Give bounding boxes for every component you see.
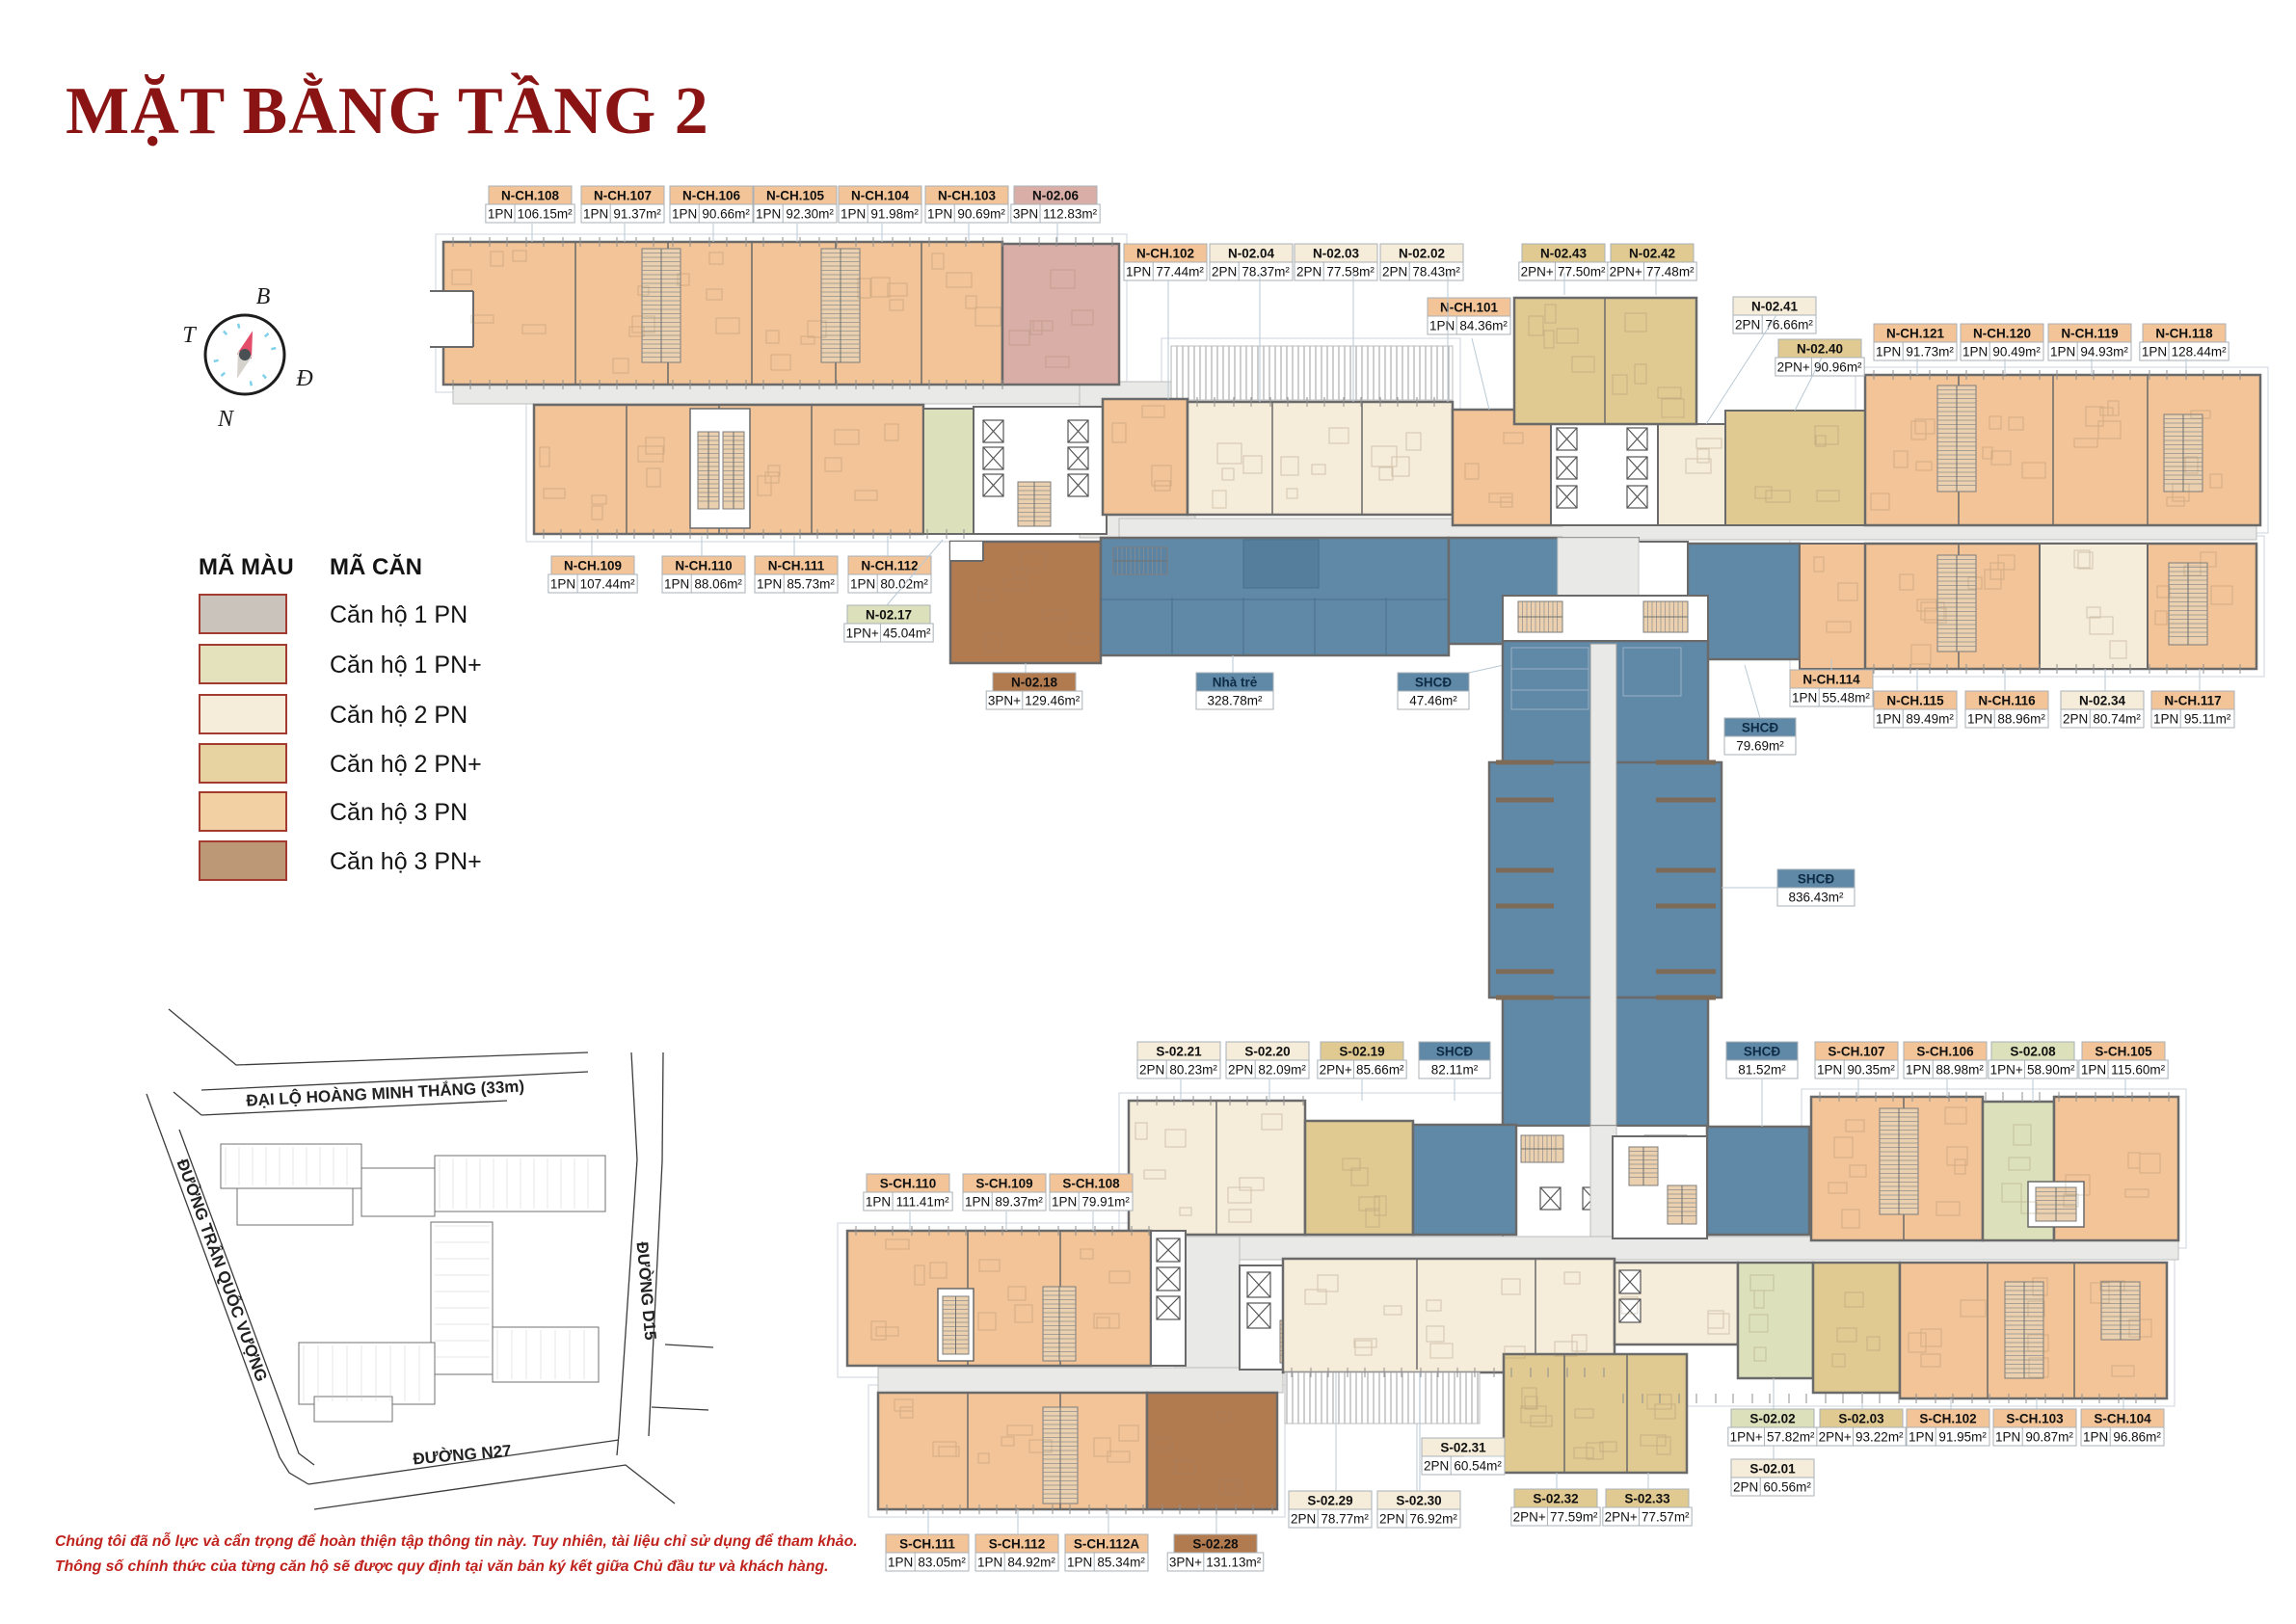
svg-text:1PN: 1PN — [2142, 345, 2167, 359]
svg-text:1PN: 1PN — [1429, 319, 1455, 333]
svg-text:2PN: 2PN — [1296, 265, 1322, 280]
svg-text:1PN: 1PN — [965, 1195, 990, 1210]
svg-text:1PN: 1PN — [1126, 265, 1151, 280]
svg-text:60.56m²: 60.56m² — [1763, 1480, 1811, 1495]
svg-text:85.73m²: 85.73m² — [787, 577, 835, 592]
svg-text:N-CH.106: N-CH.106 — [682, 189, 741, 203]
svg-text:89.49m²: 89.49m² — [1906, 712, 1954, 727]
svg-text:1PN: 1PN — [2083, 1430, 2108, 1445]
svg-text:78.43m²: 78.43m² — [1412, 265, 1460, 280]
svg-text:3PN+: 3PN+ — [1169, 1556, 1202, 1570]
svg-text:1PN: 1PN — [927, 207, 952, 222]
svg-text:S-CH.107: S-CH.107 — [1828, 1045, 1884, 1059]
svg-text:S-CH.112A: S-CH.112A — [1074, 1537, 1140, 1552]
svg-text:77.48m²: 77.48m² — [1646, 265, 1695, 280]
svg-text:1PN: 1PN — [866, 1195, 891, 1210]
svg-text:1PN: 1PN — [1909, 1430, 1934, 1445]
svg-text:77.59m²: 77.59m² — [1550, 1510, 1598, 1525]
svg-text:S-02.33: S-02.33 — [1624, 1492, 1670, 1506]
svg-text:1PN: 1PN — [1962, 345, 1988, 359]
svg-text:S-02.01: S-02.01 — [1749, 1462, 1796, 1477]
svg-text:1PN: 1PN — [1876, 712, 1901, 727]
svg-text:S-02.32: S-02.32 — [1533, 1492, 1578, 1506]
svg-text:85.34m²: 85.34m² — [1097, 1556, 1145, 1570]
svg-text:Chúng tôi đã nỗ lực và cẩn trọ: Chúng tôi đã nỗ lực và cẩn trọng để hoàn… — [55, 1531, 858, 1550]
svg-text:1PN: 1PN — [1792, 691, 1817, 706]
svg-text:129.46m²: 129.46m² — [1025, 694, 1081, 708]
svg-text:836.43m²: 836.43m² — [1788, 891, 1844, 905]
svg-text:78.77m²: 78.77m² — [1321, 1512, 1369, 1527]
svg-text:2PN: 2PN — [2063, 712, 2088, 727]
svg-text:2PN: 2PN — [1139, 1063, 1164, 1078]
svg-text:N-02.06: N-02.06 — [1032, 189, 1080, 203]
svg-text:79.91m²: 79.91m² — [1081, 1195, 1130, 1210]
svg-text:S-CH.104: S-CH.104 — [2094, 1412, 2151, 1426]
svg-text:Căn hộ 1 PN+: Căn hộ 1 PN+ — [330, 652, 482, 679]
svg-text:N-CH.117: N-CH.117 — [2164, 694, 2221, 708]
svg-text:1PN: 1PN — [583, 207, 608, 222]
svg-text:1PN: 1PN — [756, 207, 781, 222]
svg-text:93.22m²: 93.22m² — [1855, 1430, 1904, 1445]
svg-text:55.48m²: 55.48m² — [1822, 691, 1870, 706]
svg-text:MÃ CĂN: MÃ CĂN — [330, 553, 422, 580]
svg-text:N-CH.116: N-CH.116 — [1978, 694, 2036, 708]
svg-text:Căn hộ 3 PN: Căn hộ 3 PN — [330, 799, 467, 826]
svg-text:77.44m²: 77.44m² — [1156, 265, 1204, 280]
svg-text:60.54m²: 60.54m² — [1454, 1459, 1502, 1474]
svg-text:1PN: 1PN — [2050, 345, 2075, 359]
svg-text:79.69m²: 79.69m² — [1736, 739, 1784, 754]
svg-text:57.82m²: 57.82m² — [1767, 1430, 1815, 1445]
svg-text:1PN+: 1PN+ — [1730, 1430, 1763, 1445]
svg-text:1PN: 1PN — [1067, 1556, 1092, 1570]
svg-text:1PN: 1PN — [2081, 1063, 2106, 1078]
svg-text:1PN: 1PN — [1817, 1063, 1842, 1078]
svg-text:N-CH.112: N-CH.112 — [861, 559, 918, 573]
svg-text:2PN+: 2PN+ — [1819, 1430, 1852, 1445]
svg-text:78.37m²: 78.37m² — [1241, 265, 1290, 280]
svg-text:N-CH.115: N-CH.115 — [1886, 694, 1944, 708]
svg-text:2PN+: 2PN+ — [1610, 265, 1642, 280]
svg-text:S-02.28: S-02.28 — [1192, 1537, 1239, 1552]
svg-text:S-CH.110: S-CH.110 — [880, 1177, 937, 1191]
svg-text:N-CH.101: N-CH.101 — [1440, 301, 1499, 315]
svg-text:N-CH.120: N-CH.120 — [1973, 327, 2031, 341]
svg-text:S-CH.103: S-CH.103 — [2006, 1412, 2064, 1426]
svg-text:84.36m²: 84.36m² — [1459, 319, 1508, 333]
svg-text:N-CH.107: N-CH.107 — [594, 189, 652, 203]
svg-text:1PN: 1PN — [757, 577, 782, 592]
svg-text:S-CH.105: S-CH.105 — [2095, 1045, 2152, 1059]
svg-text:N-02.03: N-02.03 — [1313, 247, 1360, 261]
svg-text:92.30m²: 92.30m² — [786, 207, 834, 222]
svg-text:S-02.21: S-02.21 — [1156, 1045, 1202, 1059]
svg-text:1PN: 1PN — [977, 1556, 1002, 1570]
svg-text:131.13m²: 131.13m² — [1206, 1556, 1262, 1570]
svg-text:2PN: 2PN — [1291, 1512, 1316, 1527]
svg-text:Căn hộ 2 PN+: Căn hộ 2 PN+ — [330, 751, 482, 778]
svg-text:76.92m²: 76.92m² — [1409, 1512, 1457, 1527]
svg-text:N-02.42: N-02.42 — [1629, 247, 1675, 261]
svg-text:SHCĐ: SHCĐ — [1744, 1045, 1781, 1059]
svg-text:Căn hộ 3 PN+: Căn hộ 3 PN+ — [330, 848, 482, 875]
svg-text:MẶT BẰNG TẦNG 2: MẶT BẰNG TẦNG 2 — [66, 72, 709, 148]
svg-text:1PN: 1PN — [888, 1556, 913, 1570]
svg-text:Nhà trẻ: Nhà trẻ — [1213, 676, 1258, 690]
svg-text:2PN: 2PN — [1735, 318, 1760, 333]
svg-text:1PN: 1PN — [1052, 1195, 1077, 1210]
svg-text:94.93m²: 94.93m² — [2080, 345, 2128, 359]
svg-text:91.98m²: 91.98m² — [870, 207, 919, 222]
svg-text:81.52m²: 81.52m² — [1738, 1063, 1786, 1078]
svg-text:2PN: 2PN — [1212, 265, 1237, 280]
svg-text:N-CH.110: N-CH.110 — [675, 559, 732, 573]
svg-text:MÃ MÀU: MÃ MÀU — [199, 553, 294, 580]
svg-text:SHCĐ: SHCĐ — [1798, 872, 1835, 887]
svg-text:90.66m²: 90.66m² — [702, 207, 750, 222]
svg-text:Thông số chính thức của từng c: Thông số chính thức của từng căn hộ sẽ đ… — [55, 1558, 829, 1575]
svg-text:N-02.41: N-02.41 — [1751, 300, 1799, 314]
svg-text:N-CH.111: N-CH.111 — [768, 559, 825, 573]
svg-text:Căn hộ 2 PN: Căn hộ 2 PN — [330, 702, 467, 729]
svg-text:47.46m²: 47.46m² — [1409, 694, 1457, 708]
svg-text:95.11m²: 95.11m² — [2184, 712, 2231, 727]
svg-text:77.57m²: 77.57m² — [1642, 1510, 1690, 1525]
svg-text:N-02.17: N-02.17 — [866, 608, 912, 623]
svg-text:328.78m²: 328.78m² — [1207, 694, 1263, 708]
svg-text:107.44m²: 107.44m² — [580, 577, 636, 592]
svg-text:S-CH.102: S-CH.102 — [1919, 1412, 1976, 1426]
svg-text:1PN: 1PN — [841, 207, 866, 222]
svg-text:111.41m²: 111.41m² — [896, 1195, 950, 1210]
svg-text:1PN: 1PN — [1906, 1063, 1931, 1078]
svg-text:88.96m²: 88.96m² — [1997, 712, 2045, 727]
svg-text:90.49m²: 90.49m² — [1992, 345, 2041, 359]
svg-text:82.09m²: 82.09m² — [1258, 1063, 1306, 1078]
svg-text:91.37m²: 91.37m² — [613, 207, 661, 222]
svg-text:80.74m²: 80.74m² — [2093, 712, 2141, 727]
svg-text:N-CH.109: N-CH.109 — [564, 559, 622, 573]
svg-text:1PN: 1PN — [1967, 712, 1992, 727]
svg-text:112.83m²: 112.83m² — [1043, 207, 1098, 222]
svg-text:N-CH.105: N-CH.105 — [766, 189, 825, 203]
svg-text:N-02.04: N-02.04 — [1228, 247, 1275, 261]
svg-text:90.69m²: 90.69m² — [957, 207, 1005, 222]
svg-text:3PN+: 3PN+ — [988, 694, 1021, 708]
svg-text:1PN+: 1PN+ — [846, 626, 879, 641]
svg-text:88.98m²: 88.98m² — [1936, 1063, 1984, 1078]
svg-text:N-02.40: N-02.40 — [1797, 342, 1843, 357]
svg-text:2PN: 2PN — [1228, 1063, 1253, 1078]
svg-text:88.06m²: 88.06m² — [694, 577, 742, 592]
svg-text:S-02.02: S-02.02 — [1749, 1412, 1795, 1426]
svg-text:3PN: 3PN — [1013, 207, 1038, 222]
svg-text:90.96m²: 90.96m² — [1814, 360, 1862, 375]
svg-text:S-02.20: S-02.20 — [1244, 1045, 1290, 1059]
svg-text:85.66m²: 85.66m² — [1356, 1063, 1404, 1078]
svg-text:Đ: Đ — [295, 366, 312, 391]
svg-text:N-CH.121: N-CH.121 — [1886, 327, 1945, 341]
svg-text:89.37m²: 89.37m² — [995, 1195, 1043, 1210]
svg-text:76.66m²: 76.66m² — [1765, 318, 1813, 333]
svg-text:S-CH.112: S-CH.112 — [989, 1537, 1046, 1552]
svg-text:91.95m²: 91.95m² — [1938, 1430, 1987, 1445]
svg-text:SHCĐ: SHCĐ — [1436, 1045, 1474, 1059]
svg-text:77.58m²: 77.58m² — [1326, 265, 1375, 280]
svg-text:N-02.43: N-02.43 — [1540, 247, 1588, 261]
svg-text:N-02.34: N-02.34 — [2079, 694, 2126, 708]
svg-text:45.04m²: 45.04m² — [883, 626, 931, 641]
svg-text:B: B — [256, 284, 271, 309]
svg-text:115.60m²: 115.60m² — [2111, 1063, 2166, 1078]
svg-text:N-CH.119: N-CH.119 — [2061, 327, 2118, 341]
svg-text:91.73m²: 91.73m² — [1906, 345, 1954, 359]
svg-text:96.86m²: 96.86m² — [2113, 1430, 2161, 1445]
svg-text:2PN: 2PN — [1379, 1512, 1404, 1527]
svg-text:N-CH.108: N-CH.108 — [501, 189, 560, 203]
svg-text:1PN: 1PN — [1995, 1430, 2020, 1445]
svg-text:82.11m²: 82.11m² — [1431, 1063, 1479, 1078]
svg-text:N-CH.102: N-CH.102 — [1136, 247, 1194, 261]
svg-text:2PN: 2PN — [1733, 1480, 1758, 1495]
svg-text:S-CH.106: S-CH.106 — [1916, 1045, 1974, 1059]
svg-text:84.92m²: 84.92m² — [1007, 1556, 1055, 1570]
svg-text:Căn hộ 1 PN: Căn hộ 1 PN — [330, 601, 467, 628]
svg-text:S-02.30: S-02.30 — [1396, 1494, 1441, 1508]
svg-text:N-CH.104: N-CH.104 — [851, 189, 910, 203]
svg-text:S-02.31: S-02.31 — [1440, 1441, 1486, 1455]
svg-text:2PN: 2PN — [1424, 1459, 1449, 1474]
svg-text:SHCĐ: SHCĐ — [1415, 676, 1453, 690]
svg-text:2PN+: 2PN+ — [1513, 1510, 1546, 1525]
svg-text:1PN: 1PN — [672, 207, 697, 222]
svg-text:S-CH.111: S-CH.111 — [899, 1537, 955, 1552]
svg-text:2PN+: 2PN+ — [1521, 265, 1554, 280]
svg-text:58.90m²: 58.90m² — [2027, 1063, 2075, 1078]
svg-text:S-CH.109: S-CH.109 — [975, 1177, 1032, 1191]
svg-text:N-CH.114: N-CH.114 — [1802, 673, 1860, 687]
svg-text:S-02.19: S-02.19 — [1339, 1045, 1384, 1059]
svg-text:N-02.18: N-02.18 — [1011, 676, 1058, 690]
svg-text:1PN: 1PN — [664, 577, 689, 592]
svg-text:2PN+: 2PN+ — [1777, 360, 1810, 375]
svg-text:83.05m²: 83.05m² — [918, 1556, 966, 1570]
svg-text:80.23m²: 80.23m² — [1169, 1063, 1217, 1078]
svg-text:S-02.08: S-02.08 — [2010, 1045, 2056, 1059]
svg-text:1PN: 1PN — [550, 577, 575, 592]
svg-text:2PN+: 2PN+ — [1605, 1510, 1638, 1525]
svg-text:2PN: 2PN — [1382, 265, 1407, 280]
svg-text:77.50m²: 77.50m² — [1558, 265, 1606, 280]
svg-text:N-CH.118: N-CH.118 — [2155, 327, 2213, 341]
svg-text:SHCĐ: SHCĐ — [1742, 721, 1779, 735]
svg-text:106.15m²: 106.15m² — [518, 207, 574, 222]
svg-text:2PN+: 2PN+ — [1320, 1063, 1352, 1078]
svg-text:1PN+: 1PN+ — [1990, 1063, 2023, 1078]
svg-text:1PN: 1PN — [2153, 712, 2178, 727]
svg-text:1PN: 1PN — [850, 577, 875, 592]
svg-text:S-CH.108: S-CH.108 — [1062, 1177, 1120, 1191]
svg-text:1PN: 1PN — [1876, 345, 1901, 359]
svg-text:N-CH.103: N-CH.103 — [938, 189, 997, 203]
svg-text:90.35m²: 90.35m² — [1847, 1063, 1895, 1078]
svg-text:N: N — [217, 407, 235, 432]
svg-text:T: T — [182, 323, 197, 348]
svg-text:1PN: 1PN — [488, 207, 513, 222]
svg-text:N-02.02: N-02.02 — [1399, 247, 1445, 261]
svg-text:90.87m²: 90.87m² — [2025, 1430, 2073, 1445]
svg-text:S-02.03: S-02.03 — [1838, 1412, 1884, 1426]
svg-text:S-02.29: S-02.29 — [1307, 1494, 1352, 1508]
svg-text:128.44m²: 128.44m² — [2172, 345, 2228, 359]
